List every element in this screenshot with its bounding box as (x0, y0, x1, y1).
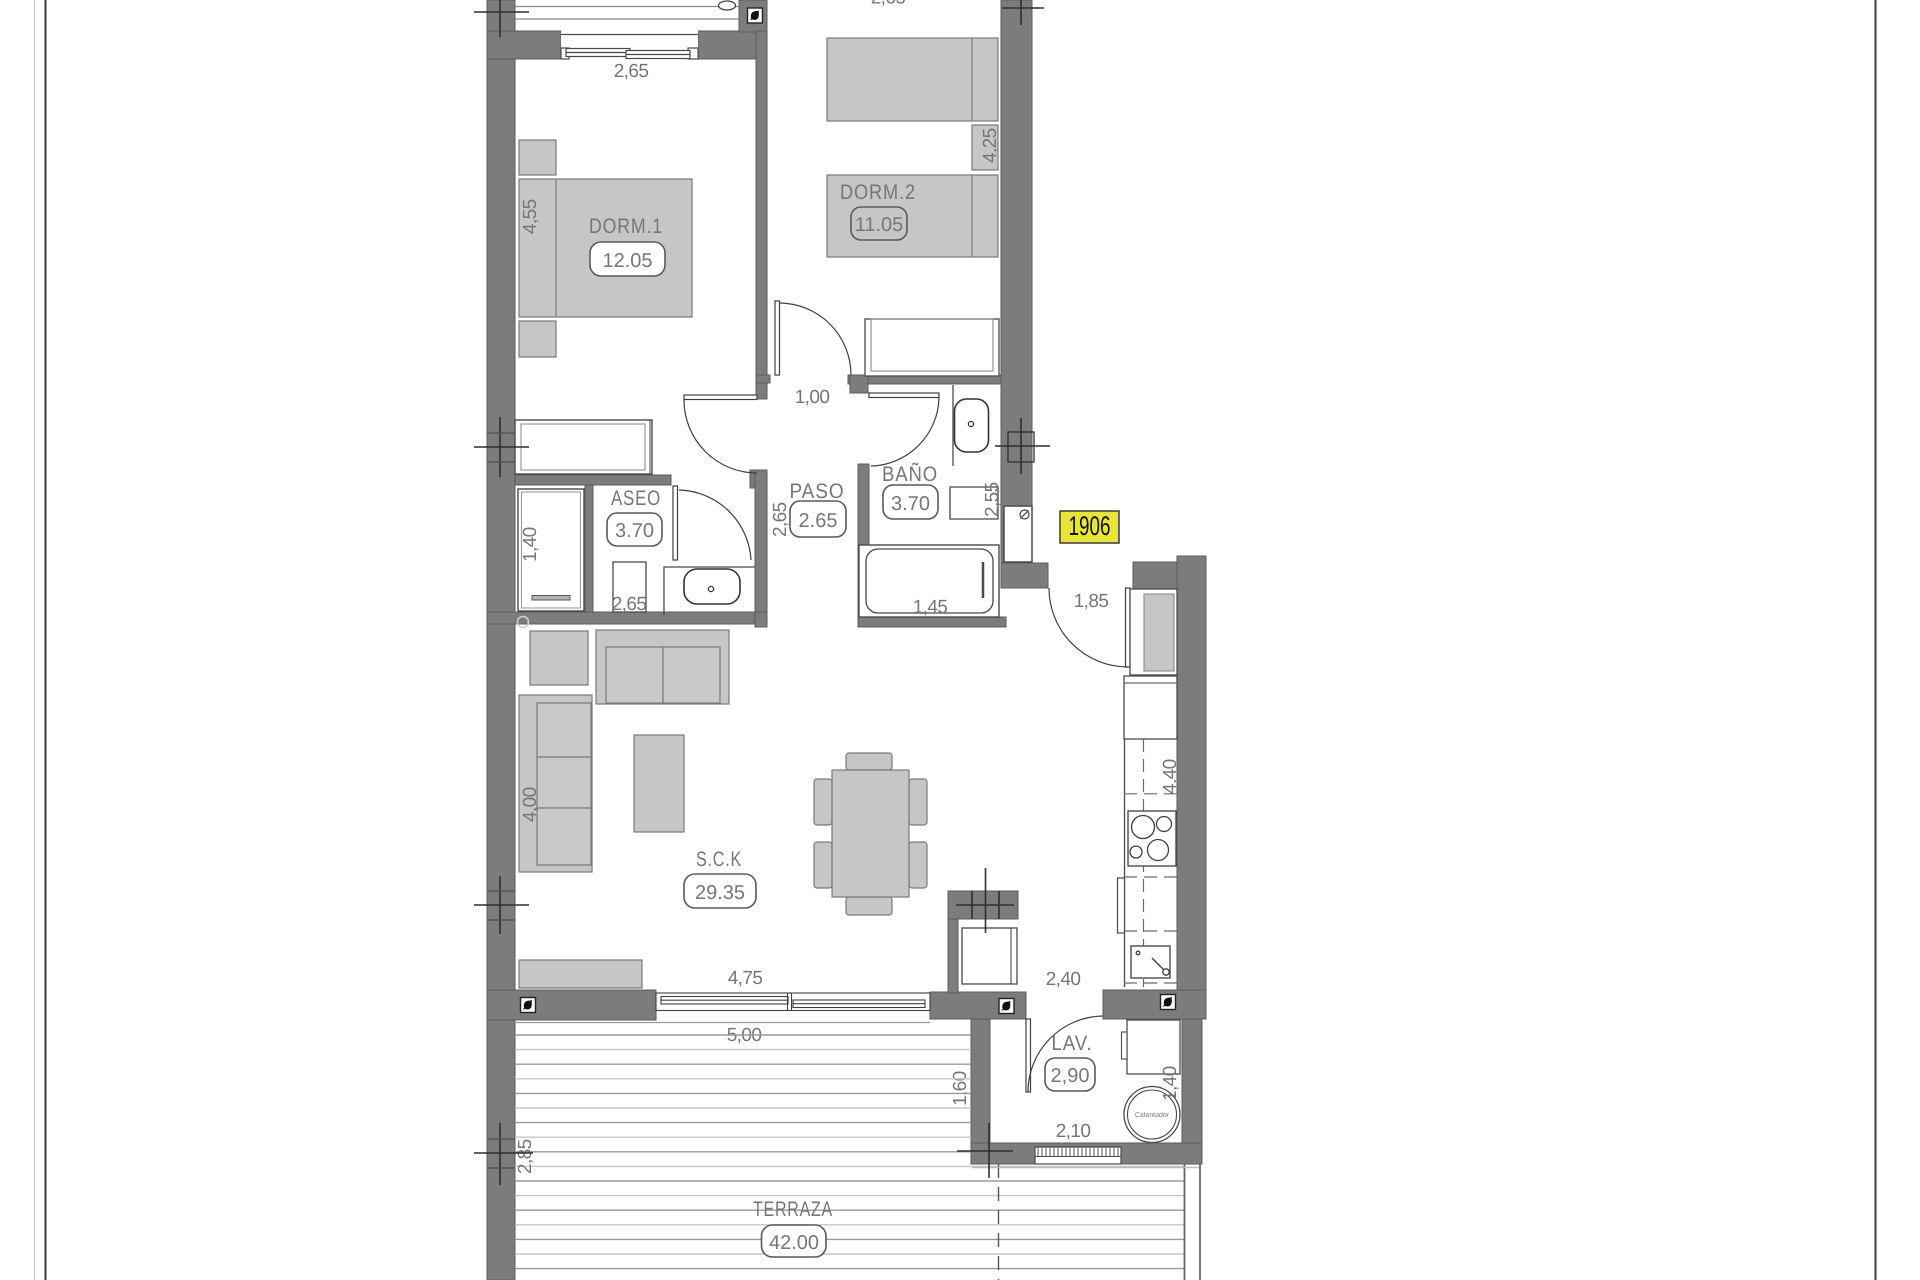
svg-text:4,55: 4,55 (520, 199, 541, 234)
svg-text:LAV.: LAV. (1052, 1032, 1093, 1055)
svg-text:4,40: 4,40 (1160, 759, 1181, 794)
svg-text:12.05: 12.05 (602, 250, 652, 272)
svg-text:11.05: 11.05 (855, 214, 904, 236)
svg-text:3.70: 3.70 (615, 520, 654, 542)
svg-text:3.70: 3.70 (891, 493, 930, 515)
svg-text:1,40: 1,40 (520, 527, 541, 562)
svg-text:42.00: 42.00 (769, 1232, 819, 1254)
svg-text:Calentador: Calentador (1135, 1111, 1170, 1119)
svg-text:2.65: 2.65 (799, 510, 838, 532)
svg-text:2,65: 2,65 (614, 61, 649, 82)
svg-text:4,25: 4,25 (980, 128, 1001, 163)
svg-text:TERRAZA: TERRAZA (753, 1198, 833, 1221)
svg-text:2,65: 2,65 (770, 502, 791, 537)
svg-text:1,40: 1,40 (1160, 1066, 1181, 1101)
svg-text:1,60: 1,60 (950, 1071, 971, 1106)
svg-text:2,65: 2,65 (612, 594, 647, 615)
svg-text:1906: 1906 (1069, 511, 1111, 541)
svg-text:1,45: 1,45 (913, 597, 948, 618)
svg-text:2,85: 2,85 (515, 1139, 536, 1174)
svg-text:DORM.1: DORM.1 (589, 215, 663, 238)
svg-text:2,10: 2,10 (1056, 1121, 1091, 1142)
svg-text:DORM.2: DORM.2 (840, 181, 916, 204)
svg-text:29.35: 29.35 (695, 882, 745, 904)
svg-text:S.C.K: S.C.K (696, 848, 742, 871)
svg-text:ASEO: ASEO (611, 487, 661, 510)
svg-text:PASO: PASO (790, 480, 845, 503)
svg-text:1,00: 1,00 (795, 387, 830, 408)
svg-text:2,90: 2,90 (1051, 1065, 1090, 1087)
svg-text:4,75: 4,75 (728, 968, 763, 989)
svg-text:1,85: 1,85 (1074, 591, 1109, 612)
svg-text:2,55: 2,55 (982, 482, 1003, 517)
svg-text:4,00: 4,00 (520, 787, 541, 822)
svg-text:2,40: 2,40 (1046, 969, 1081, 990)
svg-text:BAÑO: BAÑO (882, 462, 938, 486)
svg-text:2,65: 2,65 (871, 0, 906, 9)
